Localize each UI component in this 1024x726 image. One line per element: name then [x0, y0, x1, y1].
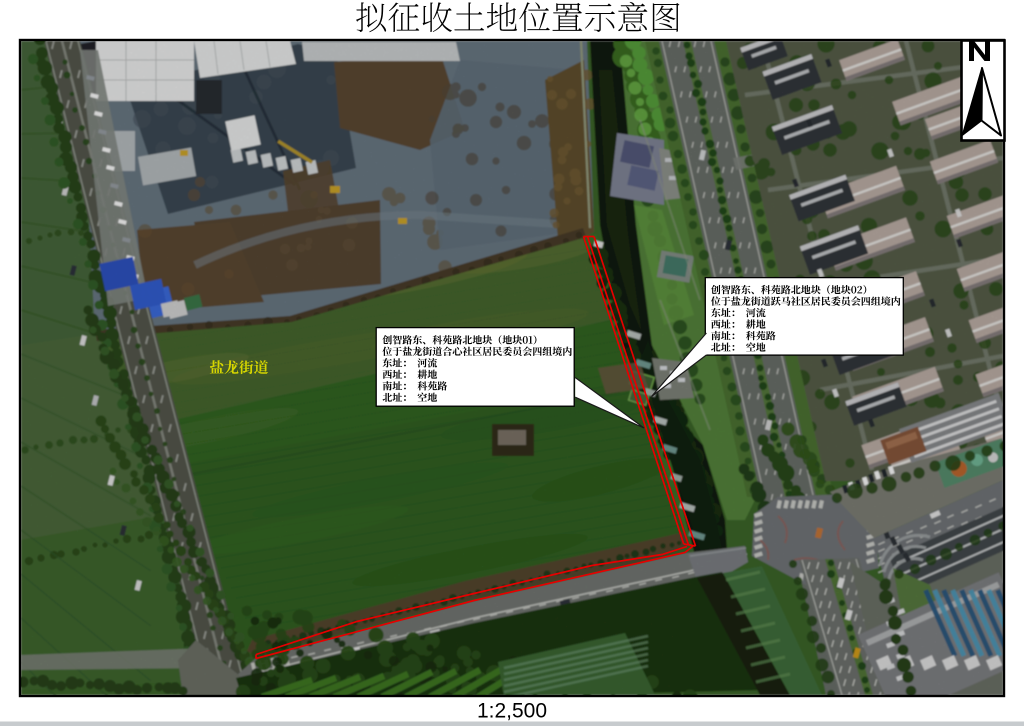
- svg-text:1:2,500: 1:2,500: [477, 700, 547, 723]
